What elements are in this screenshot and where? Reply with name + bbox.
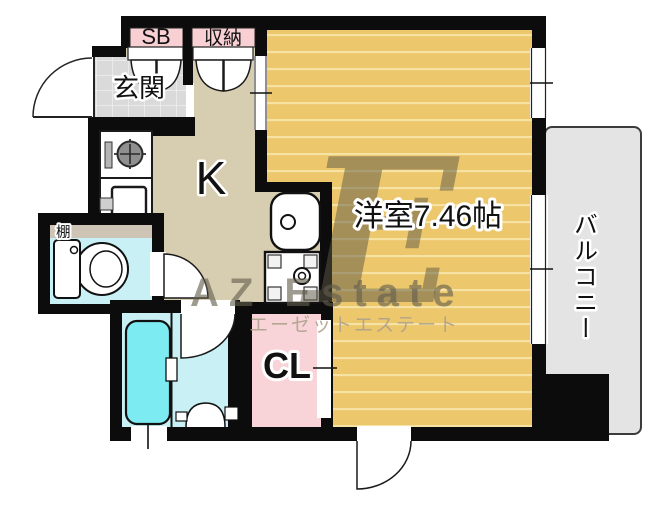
label-shelf: 棚	[56, 224, 71, 241]
floor-plan-canvas: E AZ Estate エーゼットエステート SB 収納 玄関 K 棚 洋室7.…	[0, 0, 671, 513]
bottom-door-opening	[357, 426, 411, 442]
wall-bottom-right	[534, 374, 609, 441]
bathtub-icon	[126, 321, 170, 424]
floor-plan: E AZ Estate エーゼットエステート SB 収納 玄関 K 棚 洋室7.…	[0, 0, 671, 513]
label-closet: CL	[263, 345, 311, 386]
bathroom	[110, 300, 240, 449]
entrance-door	[33, 57, 94, 117]
watermark-company-en: AZ Estate	[190, 271, 465, 315]
label-entrance: 玄関	[113, 73, 165, 103]
entrance-step	[186, 83, 194, 117]
bottom-door	[357, 426, 411, 489]
label-kitchen: K	[196, 152, 227, 204]
entrance-door-arc	[33, 58, 92, 117]
bath-divider-handle	[166, 358, 177, 381]
label-shoe-box: SB	[141, 24, 170, 49]
label-western-room: 洋室7.46帖	[354, 200, 502, 233]
bottom-door-arc	[357, 441, 411, 489]
bathroom-window	[131, 426, 167, 441]
label-storage: 収納	[204, 27, 242, 49]
window-upper	[530, 48, 553, 118]
toilet-icon	[54, 240, 128, 298]
wall-entrance-step	[92, 46, 126, 57]
watermark-company-jp: エーゼットエステート	[249, 314, 459, 336]
stove-icon	[100, 131, 152, 178]
label-balcony: バルコニー	[570, 212, 597, 342]
